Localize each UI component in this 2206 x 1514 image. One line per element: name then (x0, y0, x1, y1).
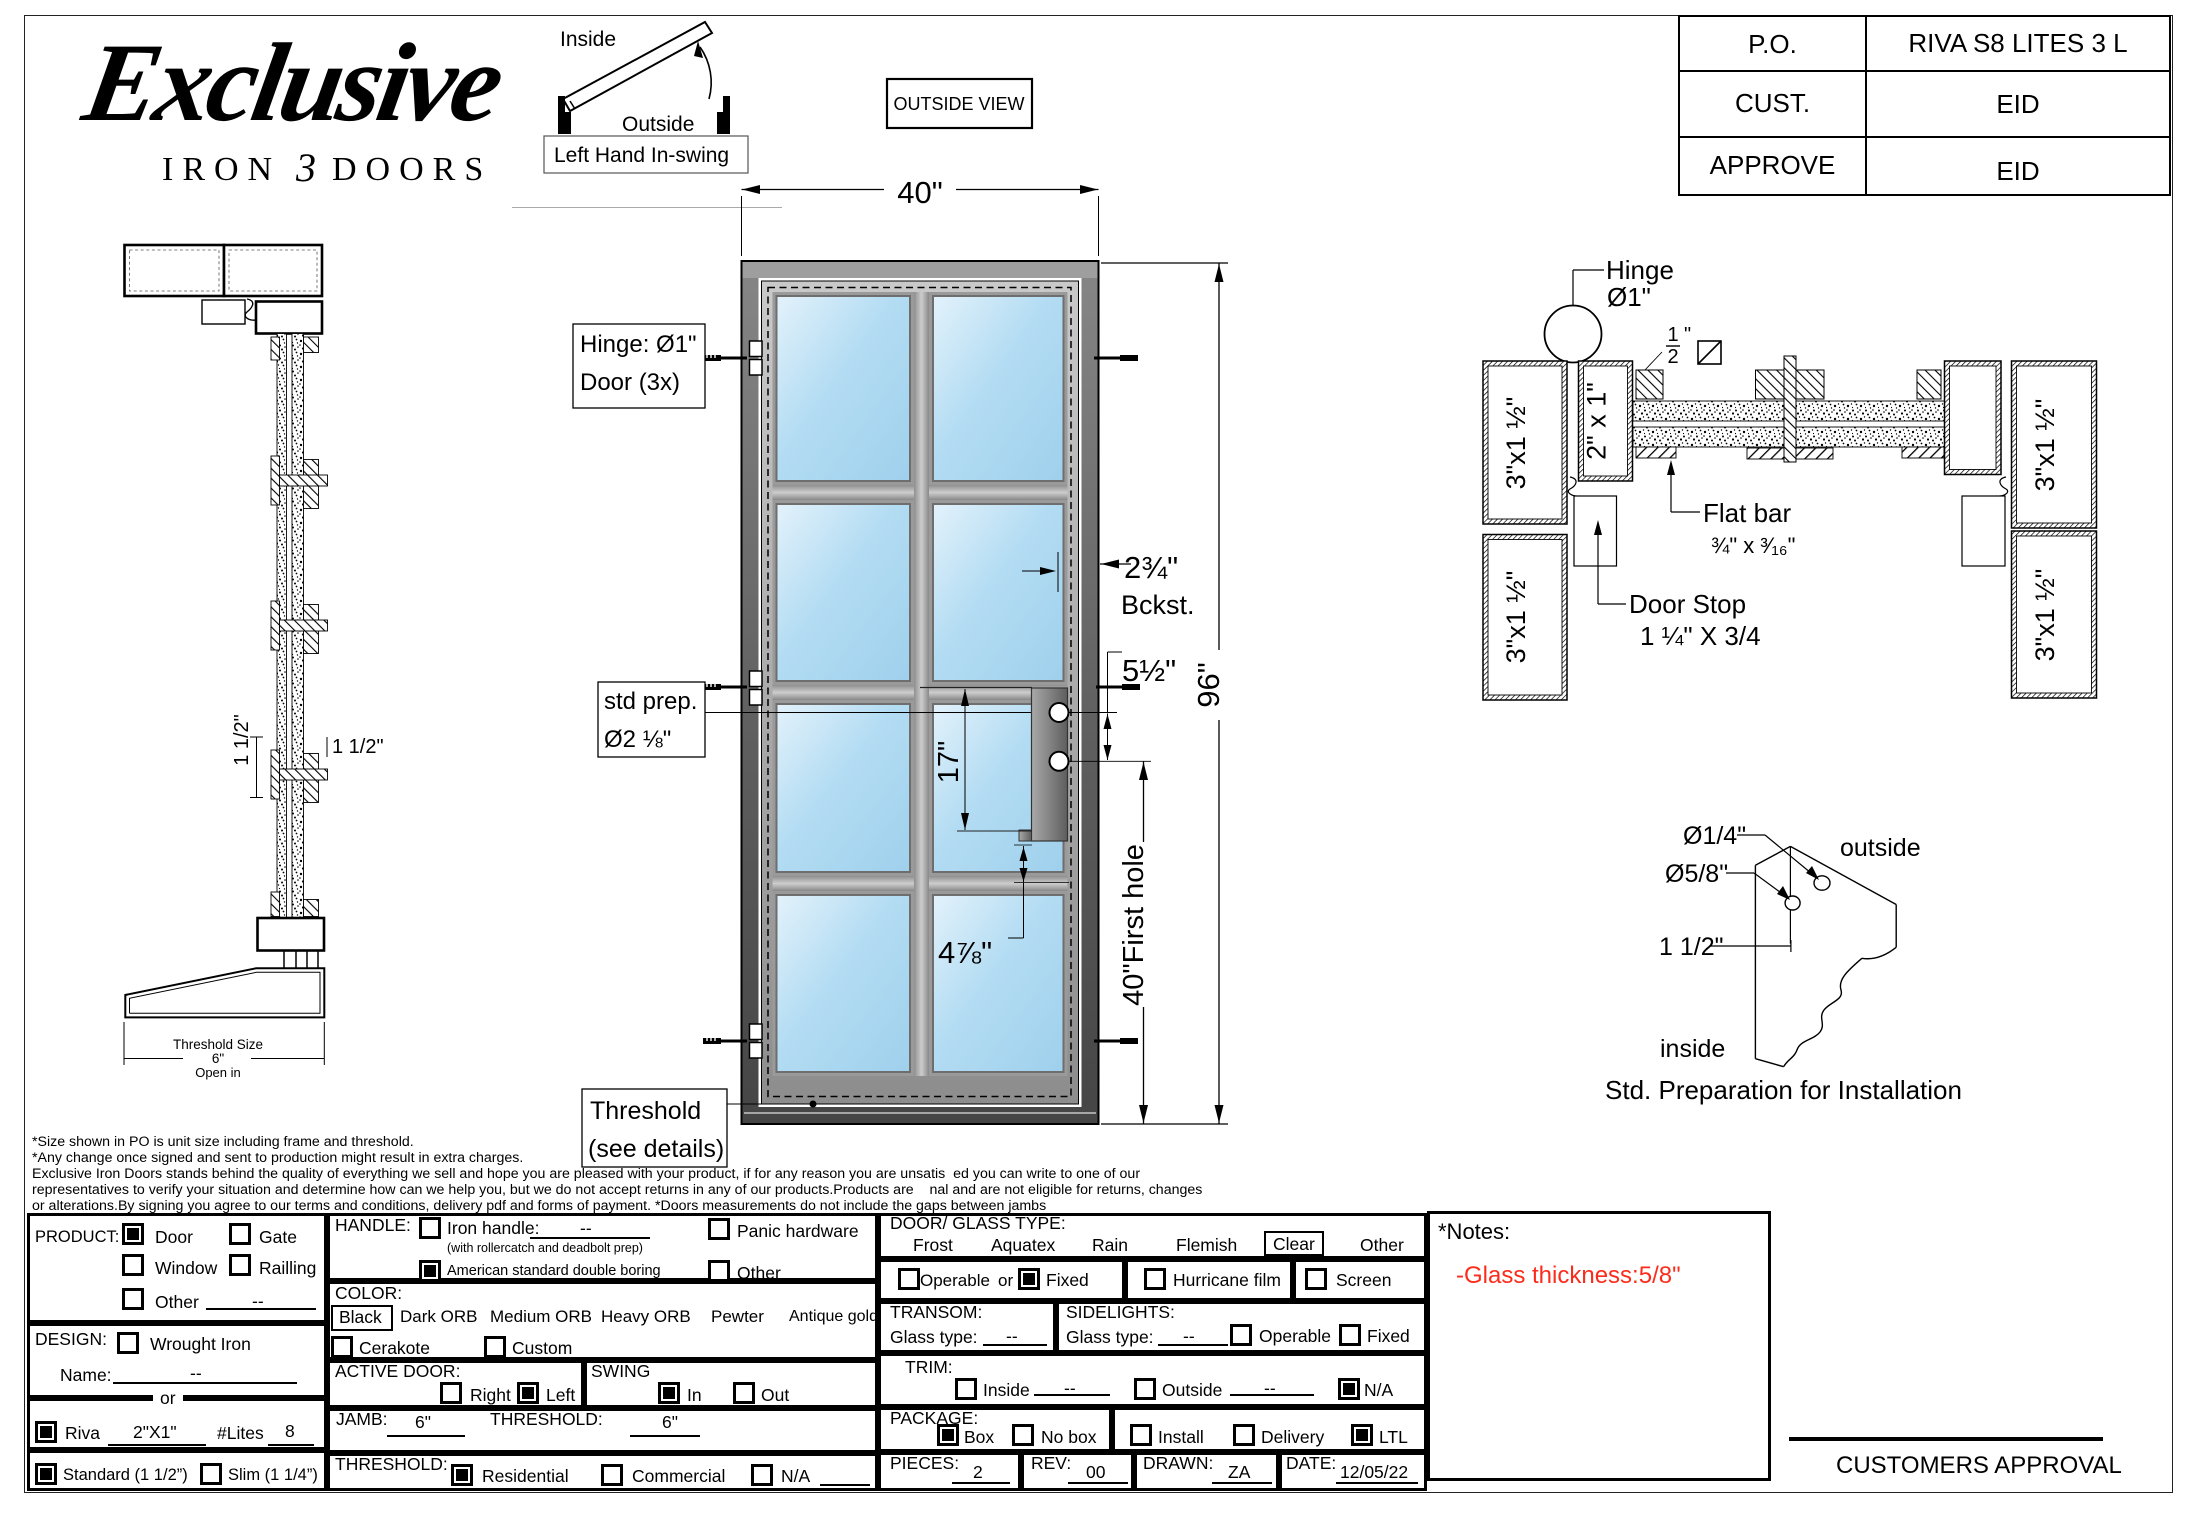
svg-text:6": 6" (212, 1051, 225, 1066)
svg-text:40": 40" (897, 175, 943, 210)
svg-text:Open in: Open in (195, 1065, 241, 1080)
svg-text:1 1/2": 1 1/2" (1659, 933, 1723, 961)
svg-text:Outside: Outside (622, 113, 694, 136)
svg-text:40"First hole: 40"First hole (1118, 844, 1150, 1006)
svg-text:1: 1 (1667, 324, 1678, 346)
svg-text:3"x1 ½": 3"x1 ½" (2030, 399, 2060, 492)
svg-text:Ø2 ⅛": Ø2 ⅛" (604, 726, 671, 753)
svg-text:Threshold Size: Threshold Size (173, 1037, 263, 1052)
svg-text:2" x 1": 2" x 1" (1582, 382, 1612, 460)
svg-text:1 1/2": 1 1/2" (231, 714, 253, 766)
svg-text:Inside: Inside (560, 28, 616, 51)
svg-text:Hinge: Hinge (1606, 255, 1674, 285)
svg-text:(see details): (see details) (588, 1135, 724, 1163)
svg-text:5½": 5½" (1122, 653, 1176, 688)
svg-text:std prep.: std prep. (604, 688, 697, 715)
svg-text:": " (1684, 324, 1691, 346)
svg-text:inside: inside (1660, 1035, 1725, 1063)
svg-text:outside: outside (1840, 834, 1921, 862)
svg-text:3"x1 ½": 3"x1 ½" (1501, 571, 1531, 664)
svg-text:1 1/2": 1 1/2" (332, 736, 384, 758)
svg-text:Std. Preparation for Installat: Std. Preparation for Installation (1605, 1075, 1962, 1105)
svg-text:1 ¼" X 3/4: 1 ¼" X 3/4 (1640, 621, 1761, 651)
svg-text:OUTSIDE VIEW: OUTSIDE VIEW (893, 94, 1024, 114)
svg-text:4⅞": 4⅞" (938, 935, 992, 970)
svg-text:Ø1": Ø1" (1607, 282, 1651, 312)
svg-text:Flat bar: Flat bar (1703, 498, 1791, 528)
svg-text:Left Hand In-swing: Left Hand In-swing (554, 144, 729, 167)
svg-text:Door (3x): Door (3x) (580, 369, 680, 396)
svg-text:Bckst.: Bckst. (1121, 590, 1195, 620)
svg-text:96": 96" (1191, 662, 1226, 708)
svg-text:3"x1 ½": 3"x1 ½" (2030, 569, 2060, 662)
svg-text:17": 17" (933, 741, 965, 784)
svg-text:Ø1/4": Ø1/4" (1683, 822, 1746, 850)
svg-text:Ø5/8": Ø5/8" (1665, 860, 1728, 888)
svg-text:Threshold: Threshold (590, 1097, 701, 1125)
svg-text:¾" x ³⁄₁₆": ¾" x ³⁄₁₆" (1711, 533, 1796, 558)
svg-text:Hinge: Ø1": Hinge: Ø1" (580, 331, 697, 358)
svg-text:3"x1 ½": 3"x1 ½" (1501, 397, 1531, 490)
svg-text:2: 2 (1667, 346, 1678, 368)
svg-text:Door Stop: Door Stop (1629, 589, 1746, 619)
svg-text:2¾": 2¾" (1124, 550, 1178, 585)
